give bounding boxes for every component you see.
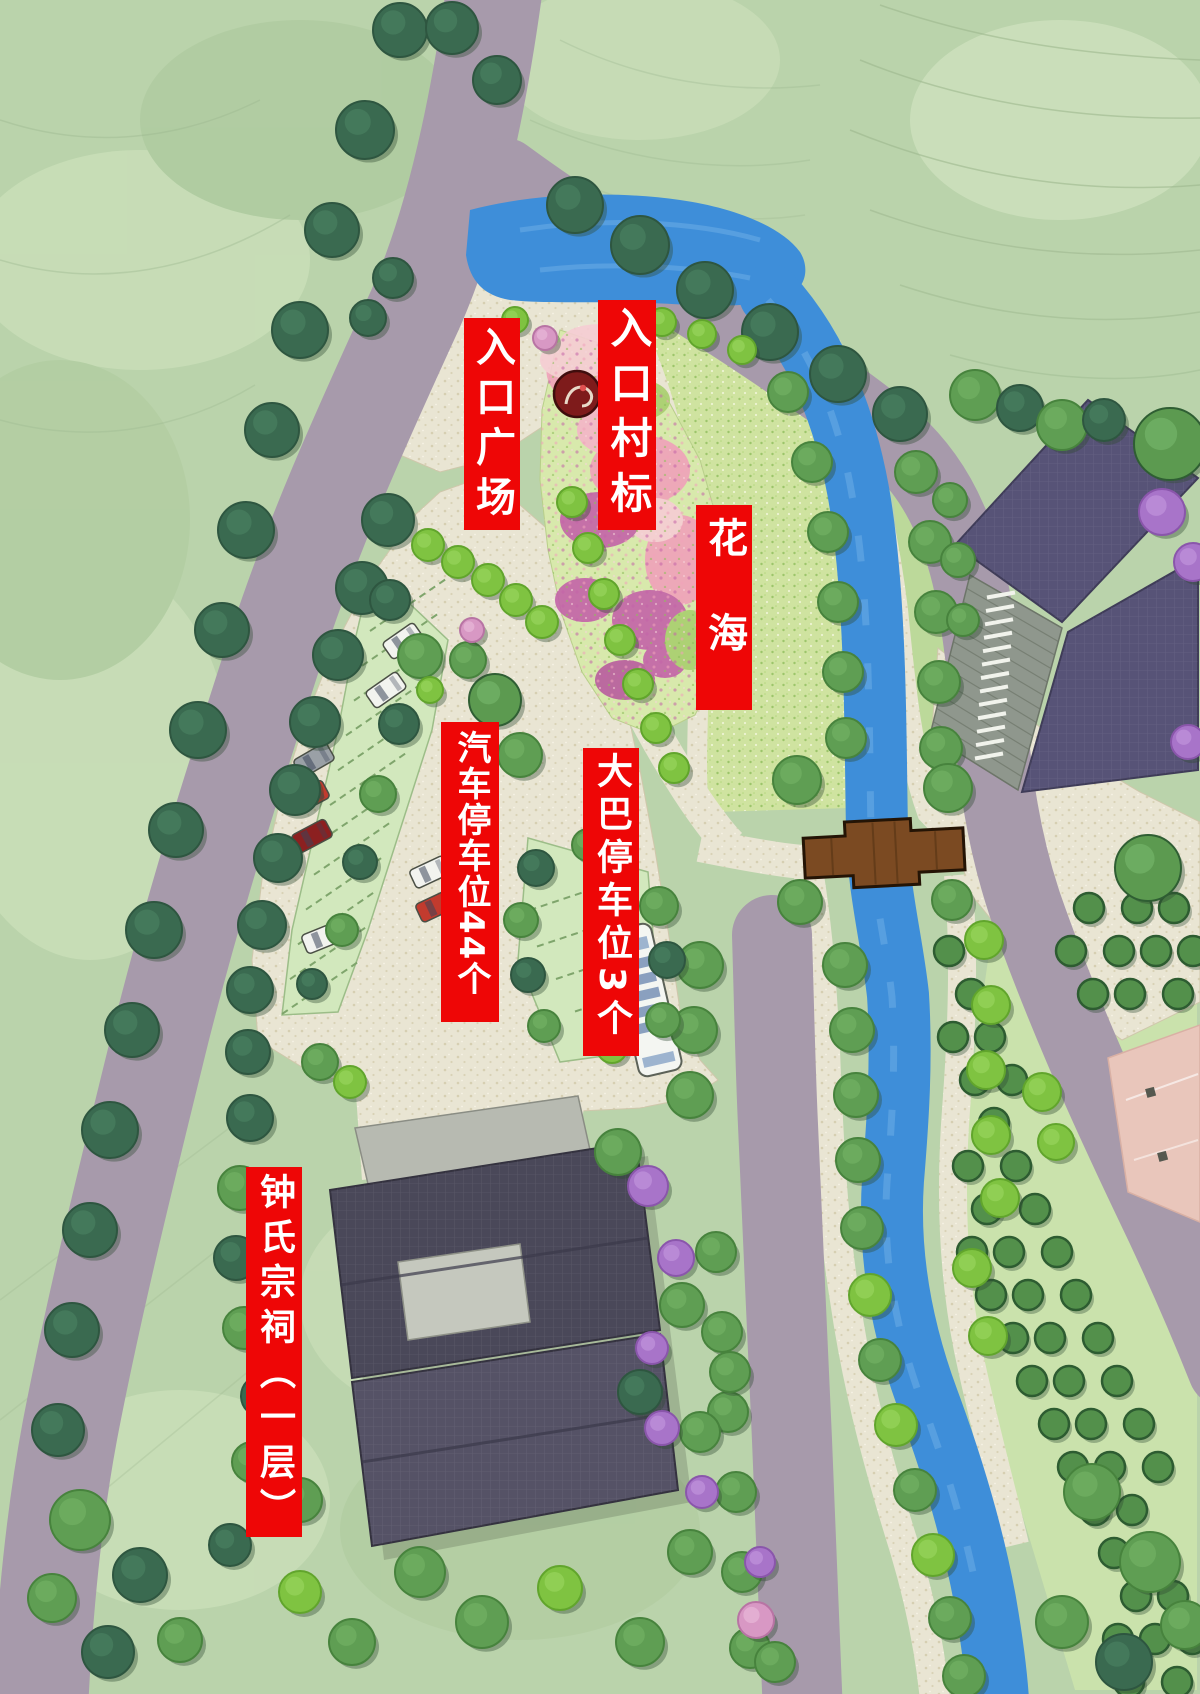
label-village-marker: 入口村标 <box>598 300 656 530</box>
village-marker-icon <box>554 371 600 417</box>
site-plan: 入口广场 入口村标 花海 汽车停车位44个 大巴停车位3个 钟氏宗祠（一层） <box>0 0 1200 1694</box>
label-car-parking: 汽车停车位44个 <box>441 722 499 1022</box>
label-flower-sea: 花海 <box>696 505 752 710</box>
label-entrance-plaza: 入口广场 <box>464 318 520 530</box>
label-ancestral-hall: 钟氏宗祠（一层） <box>246 1167 302 1537</box>
bridge-west-approach <box>700 845 808 862</box>
center-road-south <box>772 935 803 1694</box>
label-bus-parking: 大巴停车位3个 <box>583 748 639 1056</box>
